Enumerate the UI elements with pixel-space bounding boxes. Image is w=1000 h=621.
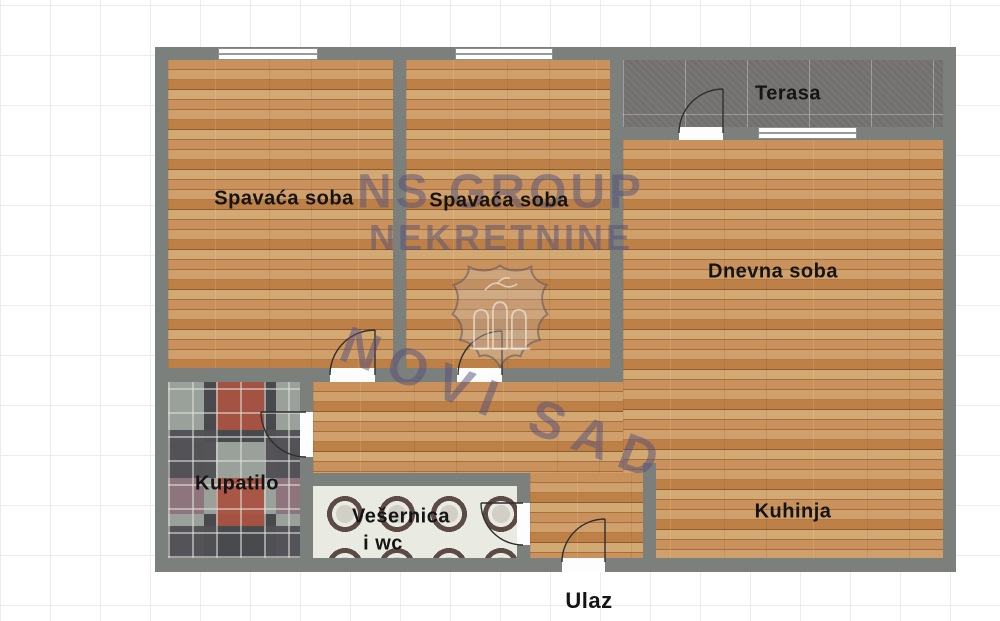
laundry-door-arc xyxy=(481,503,523,545)
entrance-label: Ulaz xyxy=(565,588,612,614)
terrace-door-arc xyxy=(679,89,723,133)
bedroom-1-label: Spavaća soba xyxy=(214,188,353,211)
watermark-line-2: NEKRETNINE xyxy=(369,217,633,259)
coat-of-arms-watermark xyxy=(446,262,554,376)
bedroom-2-label: Spavaća soba xyxy=(429,190,568,213)
kitchen-label: Kuhinja xyxy=(755,501,832,524)
floor-plan: NS GROUP NEKRETNINE NOVI SAD Spavaća sob… xyxy=(0,0,1000,621)
crest-tower-middle xyxy=(493,302,507,348)
terrace-label: Terasa xyxy=(755,83,821,106)
crest-tower-right xyxy=(512,310,526,349)
laundry-label-line-1: Vešernica xyxy=(352,506,450,529)
bathroom-door-arc xyxy=(261,412,306,457)
laundry-label-line-2: i wc xyxy=(363,533,403,556)
entrance-door-arc xyxy=(562,519,605,562)
crest-tower-left xyxy=(474,310,488,349)
living-room-label: Dnevna soba xyxy=(708,261,838,284)
bathroom-label: Kupatilo xyxy=(195,473,279,496)
